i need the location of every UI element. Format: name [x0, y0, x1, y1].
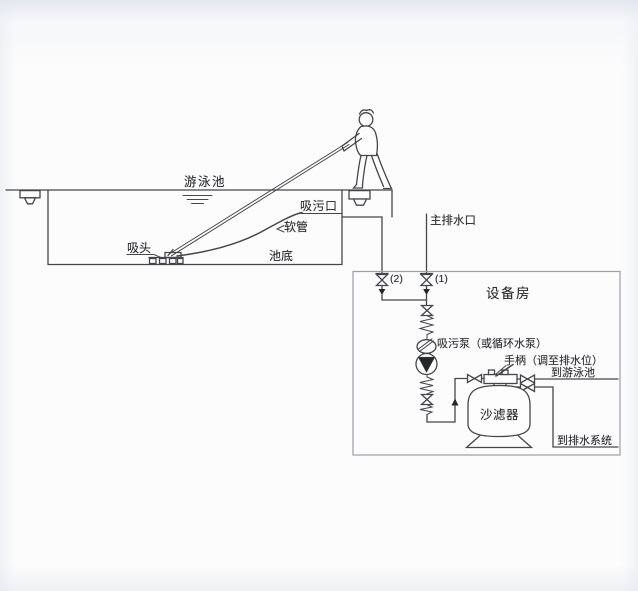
flex-connector: [420, 316, 433, 341]
valve2-branch-pipe: [382, 295, 427, 301]
wheel: [150, 259, 157, 264]
suction-port-fitting: [349, 190, 392, 217]
back-foot: [384, 187, 392, 189]
water-level-icon: [183, 196, 212, 204]
hose-label: 软管: [284, 221, 308, 234]
pool-bottom-label: 池底: [269, 250, 293, 263]
flow-arrow-up: [452, 399, 459, 406]
front-leg-inner: [363, 156, 368, 185]
discharge-valve-icon: [422, 395, 433, 405]
wheel: [160, 259, 167, 264]
suction-head-label: 吸头: [127, 242, 151, 255]
valve-1-icon: [421, 274, 433, 296]
multiport-valve: [484, 365, 517, 388]
equipment-room-label: 设备房: [486, 287, 531, 302]
suction-port-label: 吸污口: [300, 200, 338, 213]
diagram-linework: [0, 0, 638, 591]
back-leg-inner: [372, 156, 384, 187]
tank-base: [467, 436, 532, 448]
isolation-valve-icon: [422, 306, 433, 316]
valve-2-label: (2): [390, 274, 403, 286]
to-pool-label: 到游泳池: [551, 367, 595, 379]
handle-label: 手柄（调至排水位）: [504, 355, 603, 367]
hose-leader: [277, 226, 284, 233]
pool-drain-fitting-icon: [20, 191, 40, 204]
head: [359, 113, 373, 127]
wheel: [170, 259, 177, 264]
suction-pipe: [342, 217, 382, 274]
front-leg-outer: [357, 156, 362, 185]
pump-icon: [416, 354, 437, 375]
pool-title-label: 游泳池: [184, 176, 226, 190]
flex-connector: [420, 375, 433, 395]
back-leg-outer: [377, 154, 391, 187]
label-leaders: [127, 214, 506, 377]
scanned-diagram-page: 游泳池 吸污口 软管 吸头 池底 主排水口 (2) (1) 设备房 吸污泵（或循…: [0, 0, 638, 591]
valve-2-icon: [376, 274, 388, 296]
to-drain-system-label: 到排水系统: [557, 435, 612, 447]
front-foot: [354, 185, 363, 189]
person-figure: [342, 110, 392, 189]
wheel: [178, 259, 184, 264]
pump-label: 吸污泵（或循环水泵）: [437, 338, 547, 350]
to-pool-valve-icon: [521, 375, 535, 383]
sand-filter-label: 沙滤器: [480, 409, 519, 423]
filter-inlet-valve-icon: [468, 375, 482, 383]
motor-icon: [417, 339, 436, 354]
flex-connector: [420, 405, 432, 415]
valve-1-label: (1): [435, 274, 448, 286]
main-drain-label: 主排水口: [430, 215, 476, 228]
